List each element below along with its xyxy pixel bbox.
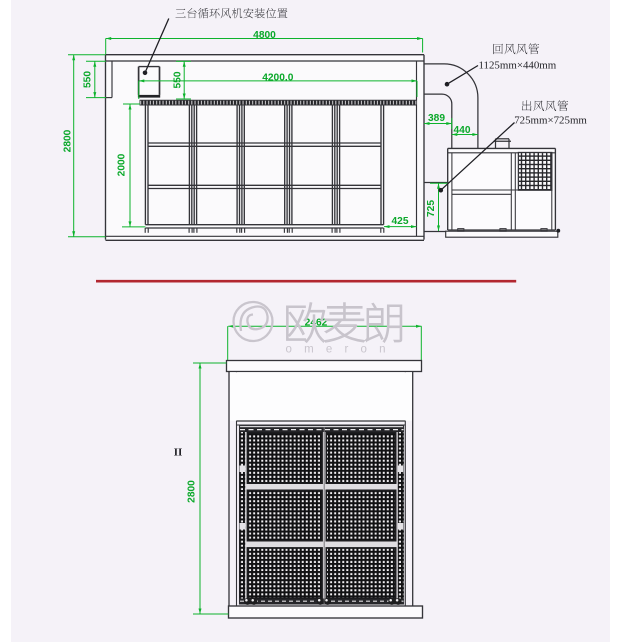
svg-text:725: 725 — [426, 200, 437, 217]
svg-text:425: 425 — [392, 216, 409, 227]
svg-text:2800: 2800 — [62, 129, 73, 152]
svg-text:4200.0: 4200.0 — [262, 73, 293, 84]
svg-text:4800: 4800 — [253, 30, 276, 41]
svg-text:550: 550 — [83, 71, 94, 88]
svg-text:omeron: omeron — [286, 344, 398, 356]
svg-text:1125mm×440mm: 1125mm×440mm — [479, 59, 557, 71]
svg-text:725mm×725mm: 725mm×725mm — [514, 114, 587, 126]
svg-text:2000: 2000 — [116, 153, 127, 176]
svg-text:2800: 2800 — [187, 480, 198, 503]
svg-text:440: 440 — [454, 125, 471, 136]
svg-text:II: II — [174, 446, 183, 458]
svg-text:550: 550 — [172, 71, 183, 88]
svg-text:389: 389 — [428, 113, 445, 124]
